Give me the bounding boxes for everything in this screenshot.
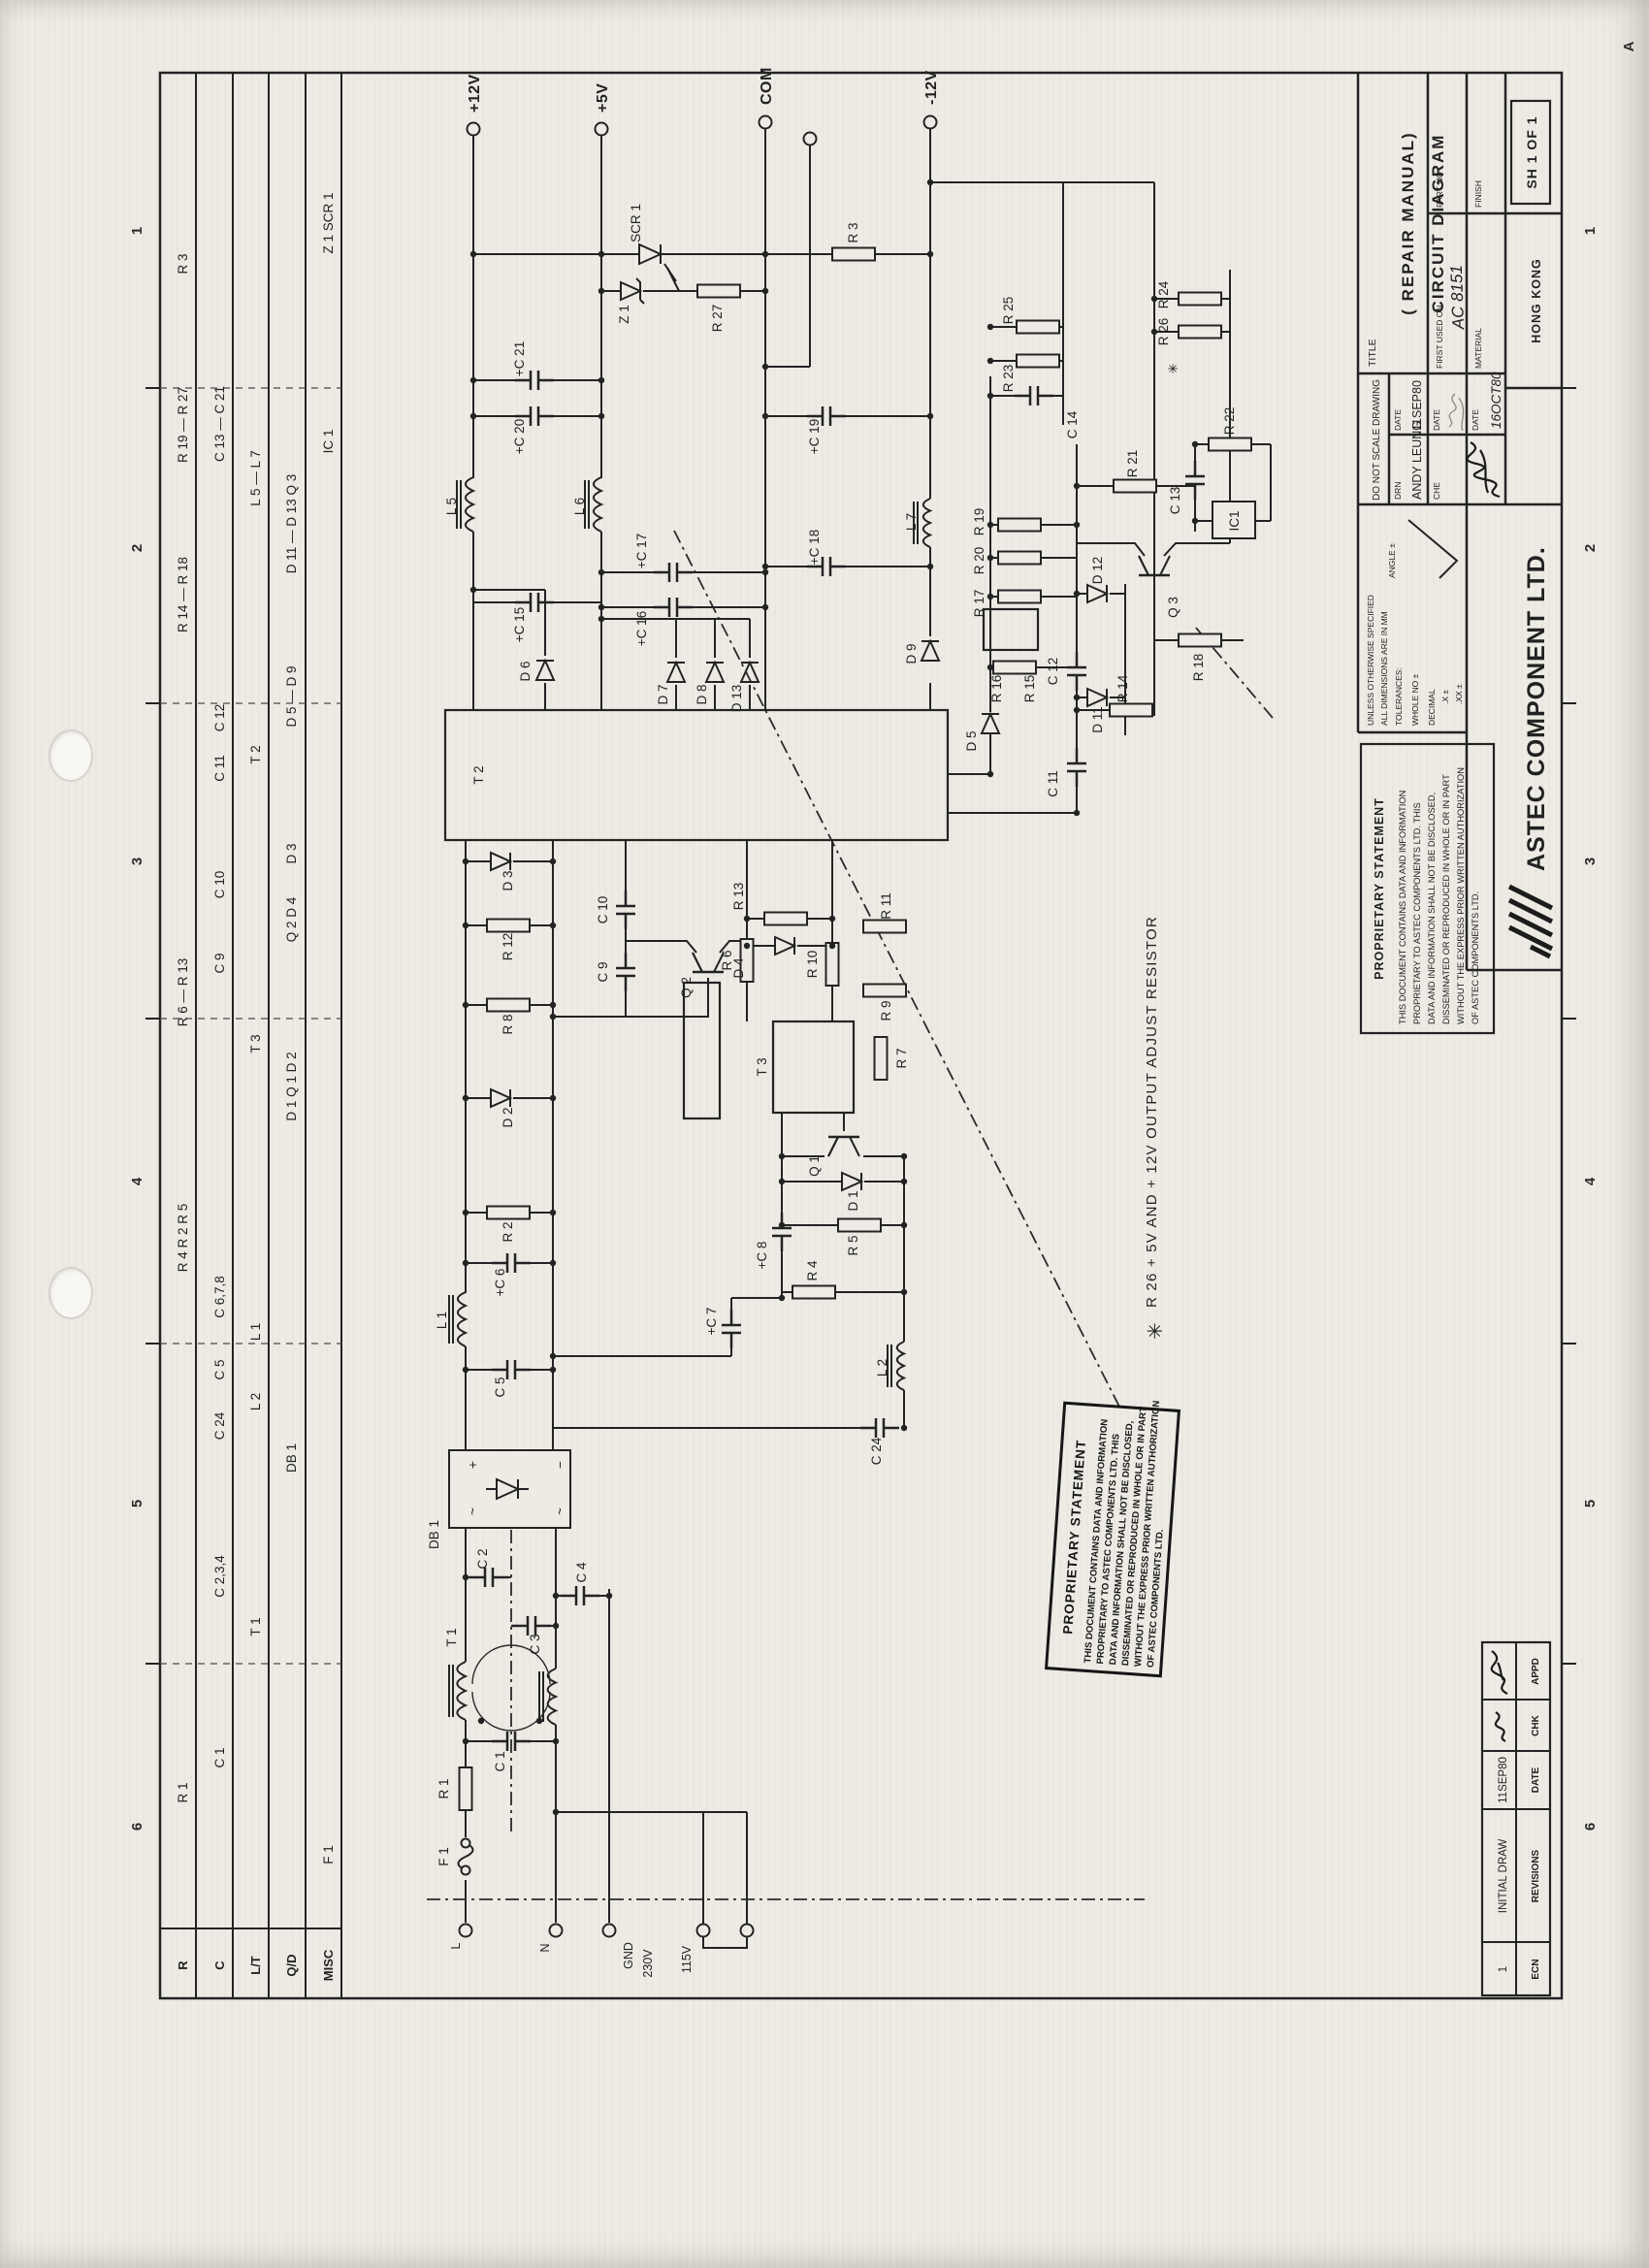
component-label: +C 6: [493, 1269, 507, 1297]
terminal-circle: [760, 116, 772, 129]
junction-dot: [927, 179, 933, 185]
junction-dot: [762, 413, 768, 419]
component-label: D 2: [501, 1107, 515, 1127]
junction-dot: [762, 564, 768, 569]
junction-dot: [553, 1623, 559, 1629]
junction-dot: [762, 364, 768, 370]
symbol: [561, 1586, 599, 1605]
component-label: R 27: [710, 305, 725, 333]
part-no-label: PART NO: [1435, 172, 1444, 208]
approval-date-handwritten: 16OCT80: [1489, 372, 1503, 429]
junction-dot: [463, 1095, 469, 1101]
zone-number: 2: [129, 544, 145, 552]
symbol: [449, 1292, 466, 1346]
component-label: D 1: [846, 1190, 860, 1211]
resistor-body: [1110, 704, 1152, 717]
junction-dot: [553, 1809, 559, 1815]
proprietary-line: PROPRIETARY TO ASTEC COMPONENTS LTD. THI…: [1412, 802, 1422, 1024]
zone-number: 5: [1582, 1500, 1599, 1507]
junction-dot: [550, 1002, 556, 1008]
junction-dot: [987, 594, 993, 599]
proprietary-line: DISSEMINATED OR REPRODUCED IN WHOLE OR I…: [1441, 774, 1451, 1024]
component-label: −: [553, 1461, 567, 1469]
component-label: R 14: [1115, 674, 1130, 702]
scanned-schematic-page: 112233445566 A RCL/TQ/DMISC R 3R 19 — R …: [0, 0, 1649, 2268]
junction-dot: [550, 1353, 556, 1359]
junction-dot: [606, 1593, 612, 1599]
terminal-circle: [924, 116, 937, 129]
locator-entry: D 5 — D 9: [284, 665, 299, 727]
locator-entry: D 1 Q 1 D 2: [284, 1052, 299, 1120]
junction-dot: [927, 251, 933, 257]
locator-entry: L 1: [248, 1323, 263, 1341]
component-label: R 12: [501, 933, 515, 961]
component-label: C 12: [1046, 658, 1060, 686]
locator-entry: T 2: [248, 745, 263, 763]
locator-entry: F 1: [321, 1845, 336, 1864]
circuit-diagram-svg: 112233445566 A RCL/TQ/DMISC R 3R 19 — R …: [0, 0, 1649, 2268]
component-label: ~: [466, 1507, 480, 1515]
material-label: MATERIAL: [1473, 328, 1483, 369]
zone-number: 1: [1582, 227, 1599, 235]
locator-entry: C 5: [212, 1359, 227, 1379]
symbol: [585, 477, 601, 532]
component-label: D 4: [731, 957, 746, 979]
title-label: TITLE: [1367, 339, 1378, 367]
junction-dot: [987, 555, 993, 561]
locator-entry: L 5 — L 7: [248, 450, 263, 506]
locator-row-header: L/T: [248, 1956, 263, 1975]
symbol: [654, 598, 693, 617]
junction-dot: [762, 569, 768, 575]
resistor-body: [460, 1767, 472, 1810]
component-label: SCR 1: [629, 204, 643, 243]
junction-dot: [987, 771, 993, 777]
locator-entry: R 3: [176, 253, 190, 274]
component-label: Z 1: [617, 305, 631, 324]
zone-number: 2: [1582, 544, 1599, 552]
finish-label: FINISH: [1473, 180, 1483, 208]
locator-entry: R 14 — R 18: [176, 557, 190, 632]
component-label: R 5: [846, 1235, 860, 1255]
tol-angle: ANGLE ±: [1387, 543, 1397, 578]
component-label: R 13: [731, 883, 746, 911]
component-label: D 8: [695, 684, 709, 704]
junction-dot: [553, 1593, 559, 1599]
transformer-t2-box: [445, 710, 948, 840]
drn-label: DRN: [1393, 482, 1403, 500]
resistor-body: [1114, 480, 1156, 493]
component-label: R 8: [501, 1014, 515, 1034]
terminal-circle: [462, 1866, 470, 1875]
terminal-circle: [741, 1925, 754, 1937]
component-label: ~: [553, 1507, 567, 1515]
locator-row-header: Q/D: [284, 1954, 299, 1976]
resistor-body: [1017, 321, 1059, 334]
component-label: +C 8: [755, 1242, 769, 1270]
locator-entry: D 3: [284, 843, 299, 863]
component-label: D 11: [1090, 706, 1105, 733]
component-label: R 18: [1191, 654, 1206, 682]
tol-line: .XX ±: [1454, 684, 1464, 704]
junction-dot: [598, 569, 604, 575]
component-label: DB 1: [427, 1520, 441, 1549]
resistor-body: [1179, 293, 1221, 306]
junction-dot: [779, 1153, 785, 1159]
locator-entry: C 12: [212, 704, 227, 732]
component-label: R 24: [1156, 280, 1171, 308]
junction-dot: [598, 604, 604, 610]
junction-dot: [536, 1718, 542, 1724]
component-label: C 10: [596, 896, 610, 924]
component-label: D 13: [729, 685, 744, 713]
date-label: DATE: [1471, 409, 1480, 431]
junction-dot: [463, 1574, 469, 1580]
component-label: ✳: [1166, 363, 1180, 373]
junction-dot: [1074, 707, 1080, 713]
chk-signature: [1496, 1712, 1505, 1741]
resistor-body: [792, 1286, 835, 1299]
junction-dot: [598, 251, 604, 257]
symbol: [457, 477, 473, 532]
rev-header: ECN: [1531, 1959, 1541, 1979]
symbol: [722, 1310, 741, 1348]
component-label: T 1: [444, 1628, 459, 1646]
junction-dot: [463, 1367, 469, 1373]
component-label: C 11: [1046, 770, 1060, 797]
component-locator-table: RCL/TQ/DMISC R 3R 19 — R 27R 14 — R 18R …: [160, 73, 341, 1998]
stamp-heading: PROPRIETARY STATEMENT: [1060, 1439, 1088, 1635]
locator-entry: T 1: [248, 1617, 263, 1636]
terminal-circle: [596, 123, 608, 136]
component-label: R 1: [436, 1778, 451, 1798]
zone-number: 5: [129, 1500, 145, 1507]
proprietary-line: THIS DOCUMENT CONTAINS DATA AND INFORMAT…: [1398, 791, 1407, 1024]
junction-dot: [470, 587, 476, 593]
output-terminal-com-label: COM: [759, 67, 775, 105]
resistor-body: [863, 985, 906, 997]
input-terminal-gnd-label: GND: [622, 1942, 635, 1969]
resistor-body: [998, 591, 1041, 603]
component-label: +: [466, 1461, 480, 1469]
junction-dot: [987, 393, 993, 399]
resistor-body: [764, 913, 807, 925]
junction-dot: [1192, 441, 1198, 447]
note-asterisk: ✳: [1145, 1322, 1167, 1340]
junction-dot: [550, 1014, 556, 1020]
component-label: R 20: [972, 547, 986, 575]
voltage-select-115-label: 115V: [680, 1945, 694, 1973]
r15-r16-housing: [984, 609, 1038, 650]
terminal-circle: [550, 1925, 563, 1937]
junction-dot: [550, 1367, 556, 1373]
junction-dot: [463, 1738, 469, 1744]
junction-dot: [478, 1718, 484, 1724]
component-label: L 7: [904, 513, 919, 531]
junction-dot: [1074, 522, 1080, 528]
component-label: R 22: [1222, 407, 1237, 436]
drn-date: 11SEP80: [1410, 380, 1424, 431]
revisions-table: 1 INITIAL DRAW 11SEP80 ECN REVISIONS DAT…: [1482, 1642, 1550, 1995]
zone-number: 3: [1582, 858, 1599, 865]
junction-dot: [463, 1260, 469, 1266]
junction-dot: [987, 522, 993, 528]
company-name: ASTEC COMPONENT LTD.: [1523, 546, 1550, 871]
resistor-body: [998, 519, 1041, 532]
resistor-body: [826, 943, 839, 986]
junction-dot: [829, 916, 835, 922]
chk-label: CHE: [1432, 482, 1441, 500]
tol-line: ALL DIMENSIONS ARE IN MM: [1379, 611, 1389, 726]
component-boxes: [445, 502, 1255, 1528]
junction-dot: [901, 1425, 907, 1431]
resistor-body: [487, 920, 530, 932]
approval-signature: [1468, 442, 1500, 497]
corner-size-letter: A: [1621, 41, 1637, 51]
tol-line: WHOLE NO ±: [1410, 673, 1420, 726]
proprietary-heading: PROPRIETARY STATEMENT: [1373, 797, 1386, 980]
sheet-number: SH 1 OF 1: [1524, 115, 1539, 188]
tol-line: UNLESS OTHERWISE SPECIFIED: [1366, 595, 1375, 726]
component-label: Q 2: [679, 977, 694, 998]
locator-row-header: MISC: [321, 1949, 336, 1981]
component-label: R 3: [846, 222, 860, 243]
tolerance-box: UNLESS OTHERWISE SPECIFIED ALL DIMENSION…: [1366, 520, 1464, 726]
component-label: C 9: [596, 961, 610, 982]
locator-entry: Q 2 D 4: [284, 896, 299, 942]
component-label: +C 20: [512, 419, 527, 454]
resistor-body: [998, 552, 1041, 565]
do-not-scale: DO NOT SCALE DRAWING: [1372, 379, 1382, 501]
junction-dot: [779, 1222, 785, 1228]
resistor-body: [1179, 326, 1221, 339]
locator-entry: C 10: [212, 871, 227, 899]
locator-entry: C 2,3,4: [212, 1555, 227, 1598]
component-label: L 2: [875, 1359, 889, 1377]
component-label: D 6: [518, 661, 533, 681]
component-label: R 25: [1001, 297, 1016, 325]
tol-line: DECIMAL: [1427, 689, 1437, 726]
terminal-circle: [462, 1839, 470, 1848]
output-terminal-minus12-label: -12V: [923, 70, 940, 105]
component-label: +C 21: [512, 341, 527, 376]
symbol: [639, 244, 680, 281]
company-logo: [1509, 887, 1552, 956]
junction-dot: [550, 1095, 556, 1101]
locator-entry: L 2: [248, 1393, 263, 1410]
junction-dot: [987, 324, 993, 330]
junction-dot: [598, 413, 604, 419]
transformer-t3-box: [773, 1021, 854, 1113]
first-used-label: FIRST USED ON: [1435, 306, 1444, 370]
drawing-border: [145, 73, 1576, 1998]
junction-dot: [901, 1153, 907, 1159]
locator-entry: C 1: [212, 1747, 227, 1767]
component-label: C 3: [528, 1634, 542, 1654]
component-label: D 12: [1090, 557, 1105, 585]
locator-row-headers: RCL/TQ/DMISC: [176, 1949, 336, 1981]
resistor-body: [838, 1219, 881, 1232]
tol-line: .X ±: [1440, 690, 1450, 704]
symbol: [621, 278, 644, 304]
revision-date: 11SEP80: [1498, 1757, 1509, 1803]
zone-number: 3: [129, 858, 145, 865]
component-label: R 11: [879, 892, 893, 920]
note-text: R 26 + 5V AND + 12V OUTPUT ADJUST RESIST…: [1144, 916, 1160, 1308]
junction-dot: [901, 1222, 907, 1228]
tol-line: TOLERANCES:: [1394, 667, 1404, 726]
pencil-scribble: [1449, 394, 1464, 431]
junction-dot: [463, 859, 469, 864]
voltage-select-230-label: 230V: [641, 1949, 655, 1978]
component-label: R 15: [1022, 675, 1037, 703]
zone-number: 1: [129, 227, 145, 235]
symbol: [828, 1137, 859, 1156]
component-label: D 7: [656, 684, 670, 704]
locator-entry: R 19 — R 27: [176, 387, 190, 463]
revision-desc: INITIAL DRAW: [1498, 1839, 1509, 1914]
output-terminal-plus12-label: +12V: [467, 74, 483, 113]
component-label: R 7: [894, 1048, 909, 1068]
locator-entry: R 4 R 2 R 5: [176, 1204, 190, 1273]
junction-dot: [550, 1260, 556, 1266]
terminal-circle: [697, 1925, 710, 1937]
junction-dot: [762, 251, 768, 257]
resistor-body: [697, 285, 740, 298]
junction-dot: [598, 288, 604, 294]
component-label: R 4: [805, 1260, 820, 1281]
component-label: C 5: [493, 1377, 507, 1397]
symbol: [1015, 386, 1053, 405]
junction-dot: [901, 1289, 907, 1295]
zone-number: 4: [129, 1177, 145, 1185]
component-label: +C 17: [634, 534, 649, 568]
terminal-circle: [804, 133, 817, 146]
locator-entry: C 6,7,8: [212, 1276, 227, 1318]
component-label: F 1: [436, 1847, 451, 1866]
resistor-body: [1179, 634, 1221, 647]
component-label: R 23: [1001, 365, 1016, 393]
drn-name: ANDY LEUNG: [1410, 421, 1424, 500]
component-label: L 5: [444, 498, 459, 515]
symbol: [842, 1173, 861, 1190]
symbol: [706, 663, 724, 682]
tolerance-checkmark: [1408, 520, 1457, 578]
rev-header: DATE: [1531, 1766, 1541, 1793]
junction-dot: [550, 1210, 556, 1215]
locator-entry: C 24: [212, 1411, 227, 1440]
symbol: [491, 853, 510, 870]
component-label: +C 15: [512, 607, 527, 642]
component-label: L 1: [435, 1312, 449, 1329]
symbol: [1087, 585, 1107, 602]
resistor-body: [875, 1037, 888, 1080]
junction-dot: [744, 943, 750, 949]
drawing-title-line2: CIRCUIT DIAGRAM: [1429, 134, 1447, 313]
symbol: [449, 1662, 466, 1720]
locator-entry: R 6 — R 13: [176, 958, 190, 1027]
first-used-value: AC 8151: [1447, 265, 1468, 331]
rev-header: APPD: [1531, 1658, 1541, 1685]
locator-entries: R 3R 19 — R 27R 14 — R 18R 6 — R 13R 4 R…: [176, 192, 336, 1863]
junction-dot: [1074, 695, 1080, 700]
proprietary-statement-stamp: PROPRIETARY STATEMENT THIS DOCUMENT CONT…: [1047, 1394, 1180, 1676]
proprietary-statement-box: PROPRIETARY STATEMENT THIS DOCUMENT CONT…: [1361, 744, 1494, 1033]
component-label: C 13: [1168, 487, 1182, 515]
component-label: T 2: [471, 765, 486, 784]
resistor-body: [487, 1207, 530, 1219]
symbol: [654, 563, 693, 582]
junction-dot: [762, 604, 768, 610]
proprietary-line: DATA AND INFORMATION SHALL NOT BE DISCLO…: [1427, 793, 1437, 1024]
junction-dot: [927, 413, 933, 419]
date-label: DATE: [1432, 409, 1441, 431]
component-label: R 17: [972, 590, 986, 618]
component-label: R 21: [1125, 450, 1140, 478]
revision-number: 1: [1498, 1966, 1509, 1972]
symbol: [772, 1213, 792, 1251]
resistor-body: [993, 662, 1036, 674]
junction-dot: [1192, 518, 1198, 524]
component-label: IC1: [1227, 510, 1242, 531]
locator-entry: Z 1 SCR 1: [321, 192, 336, 253]
symbol: [921, 641, 939, 661]
resistor-body: [863, 921, 906, 933]
resistor-body: [832, 248, 875, 261]
locator-entry: C 13 — C 21: [212, 386, 227, 462]
junction-dot: [470, 413, 476, 419]
component-label: R 19: [972, 508, 986, 536]
junction-dot: [1074, 483, 1080, 489]
component-label: R 26: [1156, 318, 1171, 346]
drawing-title-line1: ( REPAIR MANUAL): [1399, 131, 1417, 314]
component-label: Q 3: [1166, 597, 1180, 618]
locator-entry: T 3: [248, 1034, 263, 1053]
junction-dot: [598, 377, 604, 383]
input-terminal-neutral-label: N: [538, 1943, 552, 1952]
junction-dot: [553, 1738, 559, 1744]
resistor-body: [487, 999, 530, 1012]
symbol: [491, 1089, 510, 1107]
proprietary-line: OF ASTEC COMPONENTS LTD.: [1471, 891, 1480, 1024]
component-label: +C 18: [807, 530, 822, 565]
junction-dot: [901, 1179, 907, 1184]
junction-dot: [987, 664, 993, 670]
locator-row-header: C: [212, 1960, 227, 1970]
resistor-body: [1017, 355, 1059, 368]
junction-dot: [463, 923, 469, 928]
symbol: [1087, 689, 1107, 706]
rev-header: REVISIONS: [1531, 1849, 1541, 1902]
locator-entry: C 9: [212, 953, 227, 973]
symbol: [616, 891, 635, 929]
zone-number: 4: [1582, 1177, 1599, 1185]
symbol: [469, 1568, 508, 1587]
component-label: +C 7: [704, 1308, 719, 1336]
component-label: +C 19: [807, 419, 822, 454]
component-label: D 5: [964, 730, 979, 751]
junction-dot: [829, 943, 835, 949]
component-label: R 9: [879, 1000, 893, 1021]
adjust-note: ✳ R 26 + 5V AND + 12V OUTPUT ADJUST RESI…: [1144, 916, 1167, 1340]
symbol: [888, 1342, 904, 1390]
component-label: C 14: [1065, 410, 1080, 438]
component-label: R 2: [501, 1221, 515, 1242]
terminal-circle: [603, 1925, 616, 1937]
locator-entry: C 11: [212, 755, 227, 782]
terminal-circle: [468, 123, 480, 136]
resistor-body: [1209, 438, 1251, 451]
